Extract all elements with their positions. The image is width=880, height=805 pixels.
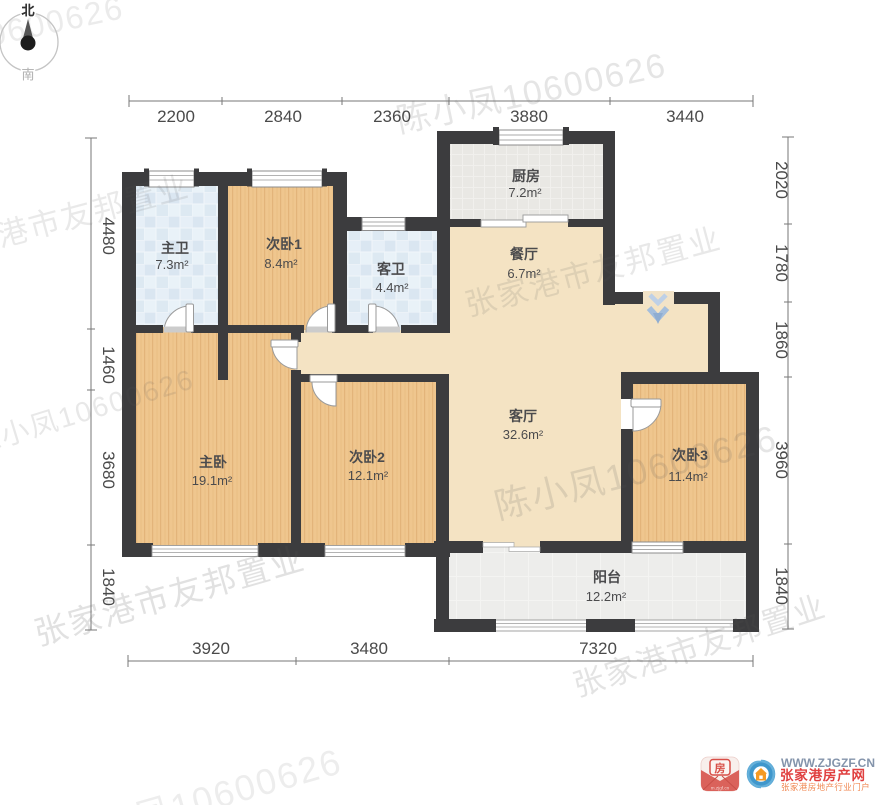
svg-text:12.1m²: 12.1m² [348,468,389,483]
svg-text:张家港房产网: 张家港房产网 [780,767,866,783]
svg-text:餐厅: 餐厅 [509,246,538,262]
svg-text:主卫: 主卫 [161,240,189,256]
svg-text:客卫: 客卫 [376,261,405,277]
svg-text:厨房: 厨房 [512,168,540,184]
svg-text:32.6m²: 32.6m² [503,427,544,442]
svg-text:6.7m²: 6.7m² [507,266,541,281]
svg-text:次卧2: 次卧2 [349,449,385,465]
svg-text:7.2m²: 7.2m² [508,185,542,200]
svg-text:2200: 2200 [157,107,195,126]
svg-text:3680: 3680 [99,451,118,489]
svg-text:2020: 2020 [772,161,791,199]
svg-text:房: 房 [715,761,726,775]
svg-text:4.4m²: 4.4m² [375,280,409,295]
svg-text:8.4m²: 8.4m² [264,256,298,271]
svg-text:m.zjgf.cn: m.zjgf.cn [711,786,730,791]
svg-text:2840: 2840 [264,107,302,126]
svg-text:1780: 1780 [772,244,791,282]
svg-text:3960: 3960 [772,441,791,479]
svg-text:南: 南 [21,67,34,82]
svg-text:3480: 3480 [350,639,388,658]
svg-text:19.1m²: 19.1m² [192,473,233,488]
svg-text:北: 北 [21,3,34,18]
svg-text:1460: 1460 [99,346,118,384]
svg-text:1840: 1840 [99,568,118,606]
svg-text:3880: 3880 [510,107,548,126]
svg-text:次卧1: 次卧1 [266,236,302,252]
svg-text:4480: 4480 [99,217,118,255]
svg-text:阳台: 阳台 [593,569,621,585]
svg-text:3920: 3920 [192,639,230,658]
svg-text:7320: 7320 [579,639,617,658]
svg-text:3440: 3440 [666,107,704,126]
svg-text:客厅: 客厅 [508,408,537,424]
svg-text:2360: 2360 [373,107,411,126]
svg-text:1840: 1840 [772,567,791,605]
svg-text:1860: 1860 [772,321,791,359]
svg-text:次卧3: 次卧3 [672,447,708,463]
svg-text:张家港房地产行业门户: 张家港房地产行业门户 [781,782,870,792]
svg-text:主卧: 主卧 [199,454,227,470]
svg-text:7.3m²: 7.3m² [155,257,189,272]
svg-text:11.4m²: 11.4m² [668,469,708,484]
svg-text:12.2m²: 12.2m² [586,589,627,604]
